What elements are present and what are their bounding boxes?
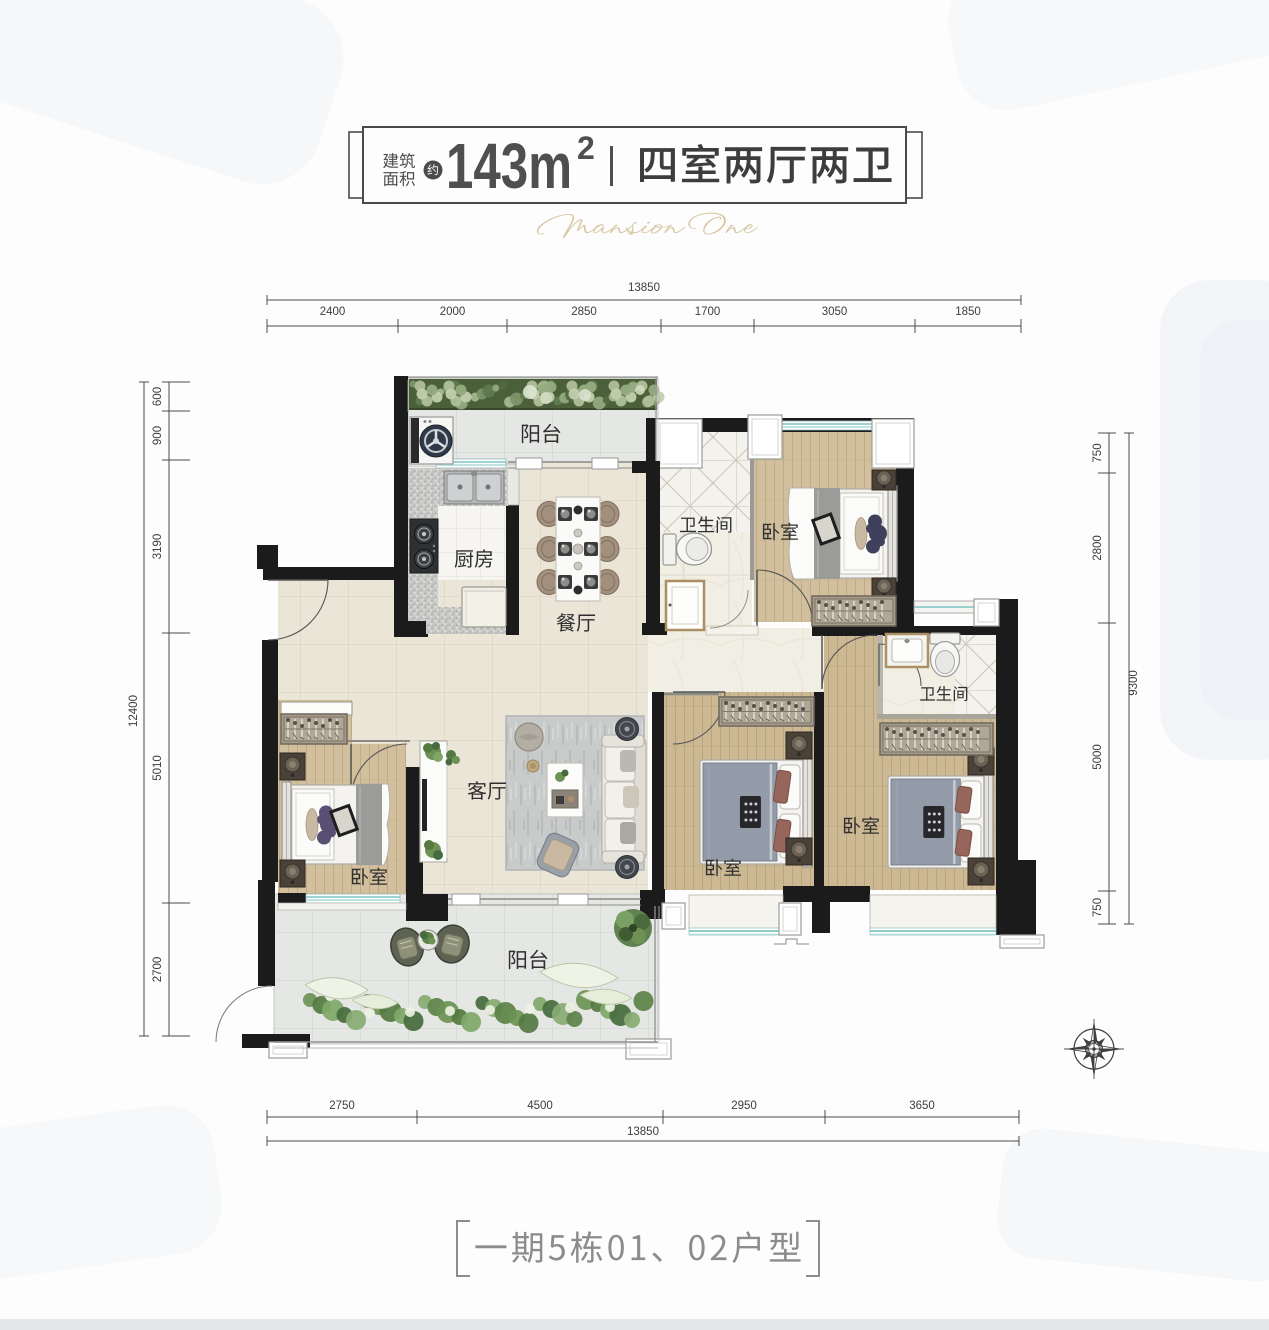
svg-text:13850: 13850: [628, 282, 660, 294]
svg-text:3190: 3190: [152, 534, 164, 560]
svg-text:3050: 3050: [822, 306, 848, 318]
svg-text:750: 750: [1092, 443, 1104, 462]
svg-text:4500: 4500: [527, 1100, 553, 1112]
svg-text:2400: 2400: [320, 306, 346, 318]
svg-text:1850: 1850: [955, 306, 981, 318]
svg-text:2: 2: [577, 130, 595, 166]
svg-text:2950: 2950: [731, 1100, 757, 1112]
svg-text:13850: 13850: [627, 1126, 659, 1138]
svg-text:900: 900: [152, 426, 164, 445]
svg-text:2700: 2700: [152, 957, 164, 983]
svg-text:2750: 2750: [329, 1100, 355, 1112]
svg-text:600: 600: [152, 387, 164, 406]
svg-text:2850: 2850: [571, 306, 597, 318]
svg-text:143m: 143m: [446, 130, 572, 202]
svg-text:2800: 2800: [1092, 535, 1104, 561]
svg-text:9300: 9300: [1128, 670, 1140, 696]
svg-text:2000: 2000: [440, 306, 466, 318]
svg-text:5010: 5010: [152, 755, 164, 781]
svg-text:3650: 3650: [909, 1100, 935, 1112]
svg-text:5000: 5000: [1092, 744, 1104, 770]
svg-text:1700: 1700: [695, 306, 721, 318]
svg-text:12400: 12400: [128, 695, 140, 727]
svg-text:750: 750: [1092, 898, 1104, 917]
